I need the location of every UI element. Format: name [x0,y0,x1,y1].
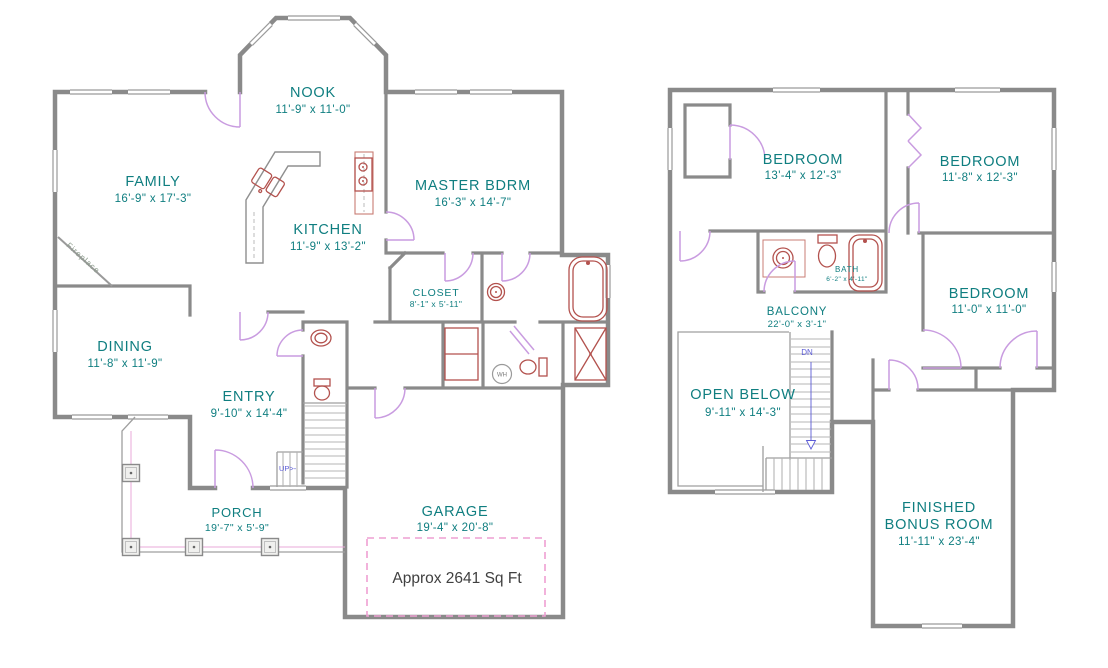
room-label-entry: ENTRY [223,389,276,405]
room-label-bonus-line1: FINISHED [902,500,976,516]
second-floor-exterior-walls [670,90,1054,626]
stairs-up-label: UP>- [279,464,297,473]
room-label-porch: PORCH [212,505,263,520]
powder-toilet [314,379,330,400]
bifold-closet-doors [908,114,921,168]
room-label-bedroom-3: BEDROOM [949,286,1030,302]
room-dims-bath: 6'-2" x 4'-11" [826,276,868,283]
room-label-kitchen: KITCHEN [293,222,362,238]
room-label-dining: DINING [97,339,153,355]
floor-plan-drawing: Fireplace [0,0,1108,668]
second-floor: DN BEDROOM 13'-4" x 12'-3" BEDROOM 11'-8… [668,88,1056,628]
second-floor-interior-walls [685,90,1054,422]
hall-bath-toilet [818,235,837,267]
first-floor-doors [205,92,534,488]
room-dims-open-below: 9'-11" x 14'-3" [705,407,781,419]
water-heater-label: WH [497,373,507,379]
room-dims-garage: 19'-4" x 20'-8" [417,522,494,534]
room-dims-bonus: 11'-11" x 23'-4" [898,536,980,548]
room-label-garage: GARAGE [422,504,489,520]
first-floor: Fireplace [53,16,610,617]
room-dims-dining: 11'-8" x 11'-9" [87,358,162,370]
room-label-family: FAMILY [125,174,180,190]
room-label-nook: NOOK [290,85,336,101]
washer-dryer [445,328,478,380]
room-label-bedroom-1: BEDROOM [763,152,844,168]
powder-sink [311,330,331,346]
room-dims-kitchen: 11'-9" x 13'-2" [290,241,366,253]
room-label-bedroom-2: BEDROOM [940,154,1021,170]
room-dims-bedroom-3: 11'-0" x 11'-0" [951,304,1026,316]
stairs-down-label: DN [801,348,813,357]
room-label-master-bdrm: MASTER BDRM [415,178,531,194]
master-bath-sink [488,284,505,301]
room-dims-family: 16'-9" x 17'-3" [115,193,192,205]
room-label-bonus-line2: BONUS ROOM [885,517,994,533]
room-dims-closet: 8'-1" x 5'-11" [410,299,463,309]
water-heater: WH [493,365,512,384]
room-label-open-below: OPEN BELOW [690,387,796,403]
room-dims-master-bdrm: 16'-3" x 14'-7" [435,197,512,209]
range [355,152,373,214]
wc-toilet [520,358,547,376]
approx-area-label: Approx 2641 Sq Ft [392,570,522,587]
room-dims-nook: 11'-9" x 11'-0" [275,104,350,116]
room-label-balcony: BALCONY [767,306,828,318]
room-dims-porch: 19'-7" x 5'-9" [205,522,269,534]
room-dims-bedroom-1: 13'-4" x 12'-3" [765,170,842,182]
first-floor-stairs: UP>- [277,403,347,487]
room-label-closet: CLOSET [413,287,460,299]
room-dims-entry: 9'-10" x 14'-4" [211,408,288,420]
floor-plan-page: Fireplace [0,0,1108,668]
hall-bath-sink [763,240,805,277]
fireplace-label: Fireplace [65,241,102,276]
master-tub [569,257,607,321]
fireplace: Fireplace [58,237,112,286]
room-label-bath: BATH [835,265,859,274]
room-dims-balcony: 22'-0" x 3'-1" [768,319,827,330]
room-dims-bedroom-2: 11'-8" x 12'-3" [942,172,1018,184]
master-shower [575,328,606,380]
